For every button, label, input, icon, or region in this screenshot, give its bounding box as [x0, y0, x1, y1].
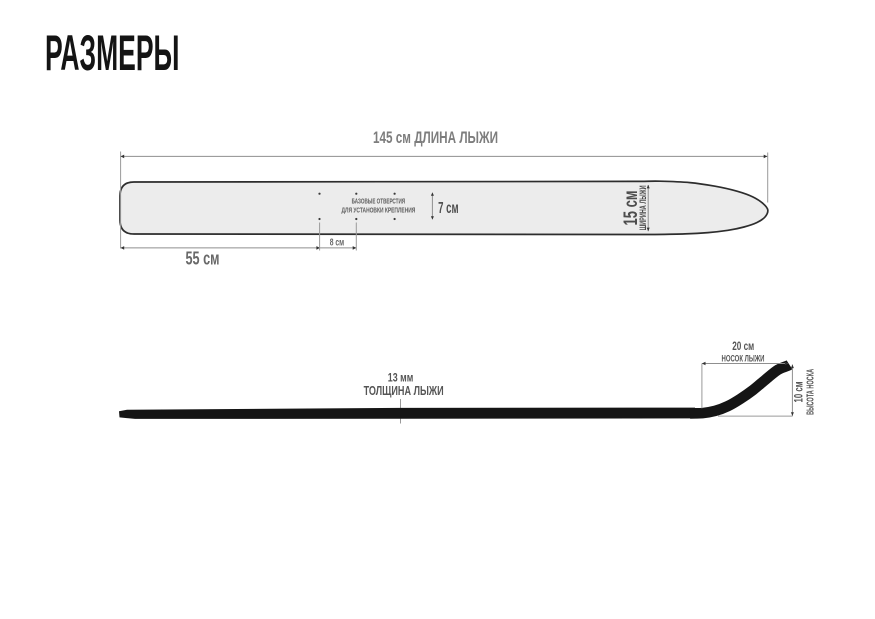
svg-text:НОСОК ЛЫЖИ: НОСОК ЛЫЖИ [722, 354, 765, 365]
svg-text:БАЗОВЫЕ ОТВЕРСТИЯ: БАЗОВЫЕ ОТВЕРСТИЯ [352, 197, 406, 206]
svg-text:ДЛЯ УСТАНОВКИ КРЕПЛЕНИЯ: ДЛЯ УСТАНОВКИ КРЕПЛЕНИЯ [342, 206, 416, 215]
svg-text:13 мм: 13 мм [388, 372, 414, 384]
svg-text:РАЗМЕРЫ: РАЗМЕРЫ [45, 25, 180, 81]
svg-text:55 см: 55 см [186, 248, 220, 269]
svg-text:ШИРИНА ЛЫЖИ: ШИРИНА ЛЫЖИ [638, 185, 649, 230]
svg-text:20 см: 20 см [732, 341, 754, 353]
svg-text:10 см: 10 см [792, 381, 806, 402]
svg-text:145 см ДЛИНА ЛЫЖИ: 145 см ДЛИНА ЛЫЖИ [373, 129, 498, 147]
svg-text:ВЫСОТА НОСКА: ВЫСОТА НОСКА [806, 369, 817, 415]
svg-text:8 см: 8 см [330, 236, 345, 248]
svg-text:7 см: 7 см [438, 200, 459, 217]
svg-text:ТОЛЩИНА ЛЫЖИ: ТОЛЩИНА ЛЫЖИ [364, 384, 444, 398]
